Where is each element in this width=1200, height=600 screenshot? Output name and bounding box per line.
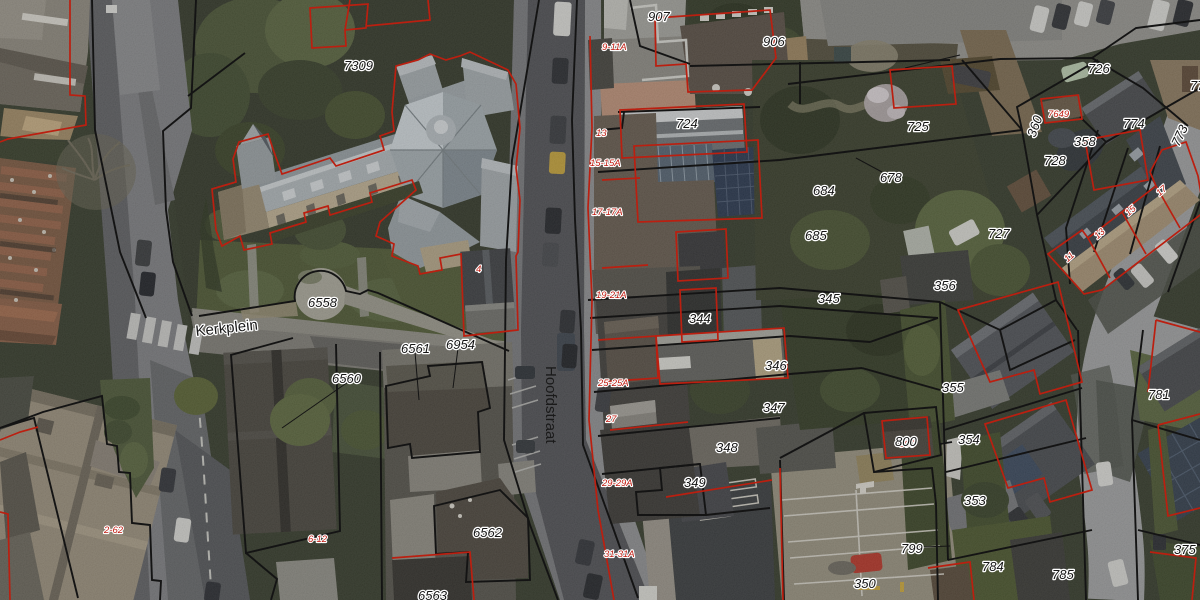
svg-text:353: 353 <box>964 493 986 508</box>
svg-text:355: 355 <box>942 380 964 395</box>
svg-text:6558: 6558 <box>308 295 338 310</box>
svg-text:354: 354 <box>958 432 980 447</box>
svg-text:6562: 6562 <box>473 525 503 540</box>
svg-text:6561: 6561 <box>401 341 430 356</box>
svg-text:906: 906 <box>763 34 785 49</box>
svg-text:31-31A: 31-31A <box>604 549 635 560</box>
svg-text:9-11A: 9-11A <box>602 42 627 53</box>
svg-text:4: 4 <box>476 264 481 275</box>
svg-text:799: 799 <box>901 541 923 556</box>
svg-text:685: 685 <box>805 228 827 243</box>
svg-text:15-15A: 15-15A <box>590 158 621 169</box>
svg-text:784: 784 <box>982 559 1004 574</box>
svg-text:344: 344 <box>689 311 711 326</box>
svg-text:77: 77 <box>1190 78 1200 93</box>
svg-text:347: 347 <box>763 400 785 415</box>
svg-text:678: 678 <box>880 170 902 185</box>
svg-text:349: 349 <box>684 475 706 490</box>
svg-text:727: 727 <box>988 226 1010 241</box>
svg-text:725: 725 <box>907 119 929 134</box>
svg-text:345: 345 <box>818 291 840 306</box>
svg-text:781: 781 <box>1148 387 1170 402</box>
svg-text:346: 346 <box>765 358 787 373</box>
svg-text:13: 13 <box>596 128 607 139</box>
svg-text:29-29A: 29-29A <box>601 478 633 489</box>
svg-text:356: 356 <box>934 278 956 293</box>
svg-text:375: 375 <box>1174 542 1196 557</box>
svg-text:907: 907 <box>648 9 670 24</box>
svg-text:800: 800 <box>895 434 917 449</box>
svg-text:684: 684 <box>813 183 835 198</box>
svg-text:724: 724 <box>676 116 698 131</box>
svg-text:7649: 7649 <box>1048 109 1070 120</box>
svg-text:774: 774 <box>1123 116 1145 131</box>
svg-text:6560: 6560 <box>332 371 362 386</box>
svg-text:6954: 6954 <box>446 337 475 352</box>
svg-text:17-17A: 17-17A <box>592 207 623 218</box>
svg-text:785: 785 <box>1052 567 1074 582</box>
svg-text:19-21A: 19-21A <box>596 290 627 301</box>
svg-text:6-12: 6-12 <box>308 534 328 545</box>
svg-text:6563: 6563 <box>418 588 448 600</box>
svg-text:358: 358 <box>1074 134 1096 149</box>
svg-text:726: 726 <box>1088 61 1110 76</box>
svg-text:Hoofdstraat: Hoofdstraat <box>542 366 559 444</box>
svg-text:27: 27 <box>605 414 617 425</box>
svg-text:348: 348 <box>716 440 738 455</box>
svg-text:7309: 7309 <box>344 58 373 73</box>
svg-text:728: 728 <box>1044 153 1066 168</box>
svg-text:2-62: 2-62 <box>103 525 124 536</box>
svg-text:25-25A: 25-25A <box>597 378 629 389</box>
svg-text:350: 350 <box>854 576 876 591</box>
